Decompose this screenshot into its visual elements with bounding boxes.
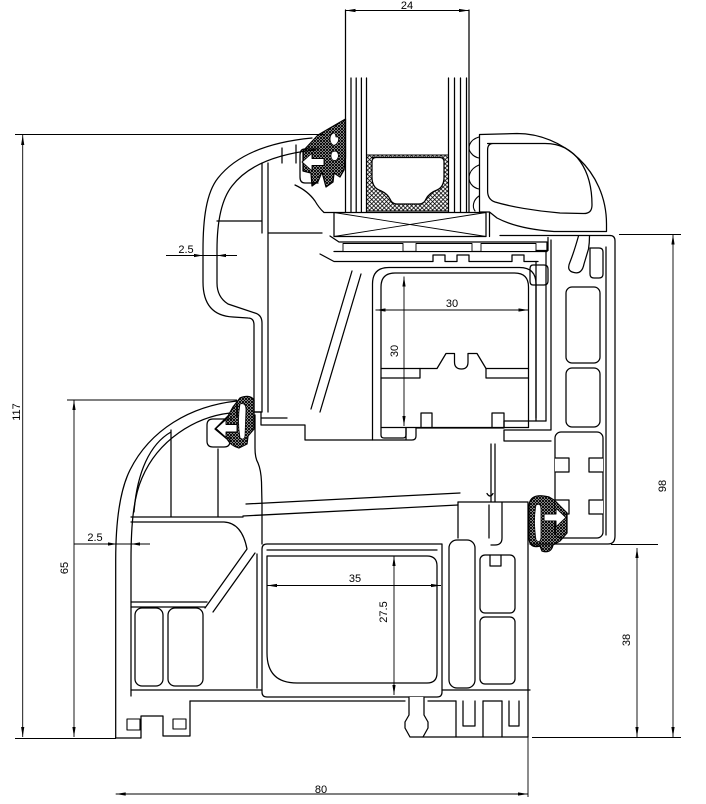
svg-text:27.5: 27.5 xyxy=(378,601,390,622)
svg-text:98: 98 xyxy=(657,480,669,492)
svg-text:30: 30 xyxy=(446,298,458,310)
svg-text:2.5: 2.5 xyxy=(87,532,102,544)
svg-text:2.5: 2.5 xyxy=(178,244,193,256)
svg-text:65: 65 xyxy=(59,562,71,574)
svg-text:38: 38 xyxy=(621,634,633,646)
svg-text:35: 35 xyxy=(349,573,361,585)
svg-text:30: 30 xyxy=(389,345,401,357)
svg-text:117: 117 xyxy=(11,403,23,421)
svg-text:24: 24 xyxy=(401,0,413,12)
svg-text:80: 80 xyxy=(315,784,327,796)
